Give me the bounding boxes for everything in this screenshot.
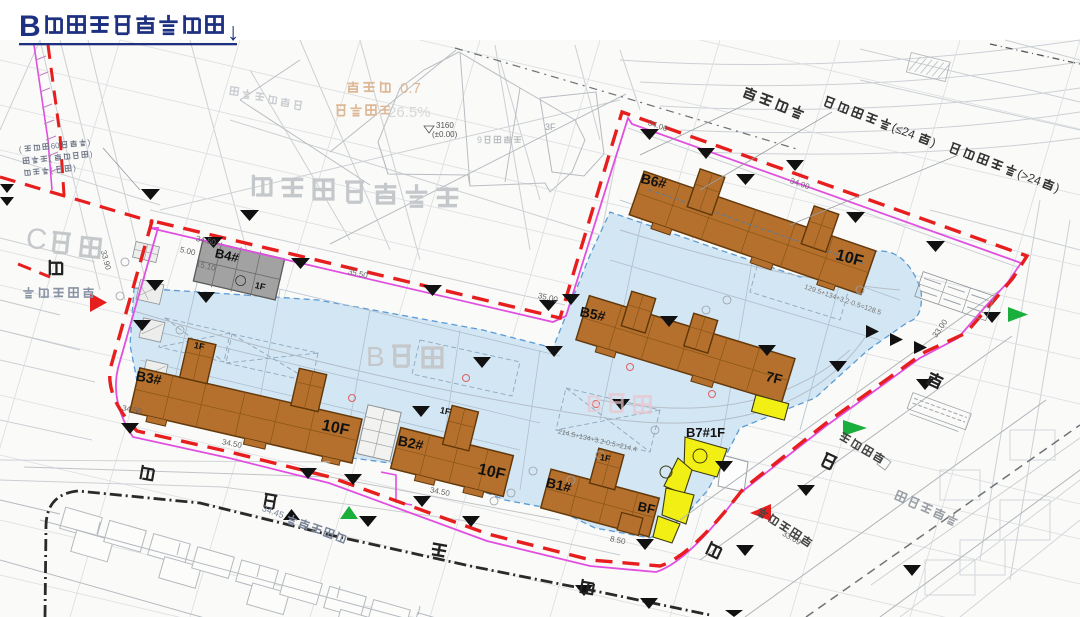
svg-text:B: B <box>19 10 41 43</box>
svg-text:60: 60 <box>50 141 60 151</box>
svg-text:3160: 3160 <box>436 121 454 130</box>
svg-text:0.7: 0.7 <box>400 80 421 97</box>
svg-text:B7#1F: B7#1F <box>686 425 725 440</box>
svg-text:(±0.00): (±0.00) <box>432 130 458 139</box>
svg-text:B: B <box>586 391 602 418</box>
svg-text:B: B <box>366 341 385 372</box>
svg-text:26.5%: 26.5% <box>388 104 431 121</box>
svg-text:3F: 3F <box>545 122 556 132</box>
svg-text:C: C <box>24 223 48 257</box>
svg-text:↓: ↓ <box>227 18 240 46</box>
svg-text:9: 9 <box>477 135 482 145</box>
